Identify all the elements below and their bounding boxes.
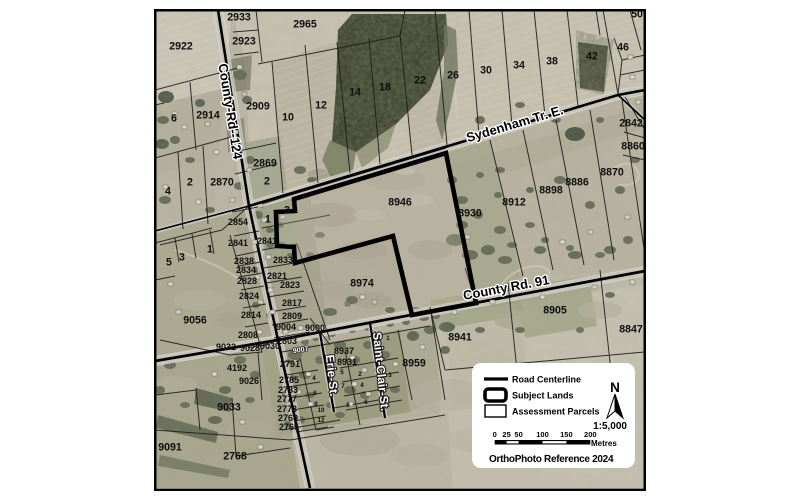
svg-text:4: 4 <box>165 186 171 198</box>
svg-text:8931: 8931 <box>337 357 357 367</box>
svg-text:2922: 2922 <box>169 41 193 53</box>
svg-text:14: 14 <box>349 87 361 99</box>
svg-text:8886: 8886 <box>565 177 589 189</box>
svg-text:Subject Lands: Subject Lands <box>512 391 574 401</box>
svg-text:8870: 8870 <box>600 167 624 179</box>
svg-text:9028: 9028 <box>240 343 260 353</box>
svg-text:6: 6 <box>364 399 368 406</box>
svg-text:150: 150 <box>560 430 573 439</box>
svg-text:8941: 8941 <box>448 332 472 344</box>
svg-text:200: 200 <box>584 430 597 439</box>
svg-text:9004: 9004 <box>276 322 296 332</box>
svg-text:10: 10 <box>282 112 294 124</box>
svg-text:Assessment Parcels: Assessment Parcels <box>512 407 600 417</box>
svg-text:2869: 2869 <box>253 158 277 170</box>
svg-text:6: 6 <box>171 113 177 125</box>
svg-text:25: 25 <box>502 430 510 439</box>
svg-text:8912: 8912 <box>502 197 526 209</box>
svg-text:2791: 2791 <box>280 359 300 369</box>
svg-text:2854: 2854 <box>228 217 248 227</box>
svg-text:9056: 9056 <box>183 315 207 327</box>
svg-text:9000: 9000 <box>305 323 325 333</box>
svg-text:1: 1 <box>386 335 390 342</box>
svg-text:2785: 2785 <box>279 375 299 385</box>
svg-text:8905: 8905 <box>543 305 567 317</box>
svg-text:Road Centerline: Road Centerline <box>512 375 581 385</box>
svg-text:2808: 2808 <box>238 330 258 340</box>
svg-text:Metres: Metres <box>591 439 617 448</box>
svg-text:9032: 9032 <box>216 342 236 352</box>
svg-text:30: 30 <box>480 65 492 77</box>
svg-text:9026: 9026 <box>239 376 259 386</box>
svg-text:8898: 8898 <box>539 185 563 197</box>
svg-text:3: 3 <box>284 205 290 217</box>
svg-text:9030: 9030 <box>260 341 280 351</box>
svg-text:2842: 2842 <box>619 118 643 130</box>
svg-text:5: 5 <box>340 369 344 376</box>
svg-text:2841: 2841 <box>257 236 277 246</box>
svg-text:2777: 2777 <box>277 394 297 404</box>
svg-text:1:5,000: 1:5,000 <box>593 421 627 432</box>
svg-text:12: 12 <box>318 417 325 424</box>
svg-text:18: 18 <box>379 82 391 94</box>
svg-text:1: 1 <box>265 214 271 226</box>
svg-text:4192: 4192 <box>227 363 247 373</box>
svg-text:3: 3 <box>179 252 185 264</box>
svg-text:100: 100 <box>536 430 549 439</box>
svg-text:2809: 2809 <box>282 311 302 321</box>
svg-text:N: N <box>610 380 620 395</box>
svg-text:2833: 2833 <box>273 255 293 265</box>
svg-text:8847: 8847 <box>619 324 643 336</box>
svg-text:OrthoPhoto Reference 2024: OrthoPhoto Reference 2024 <box>489 454 614 465</box>
svg-text:46: 46 <box>617 42 629 54</box>
svg-text:2768: 2768 <box>223 451 247 463</box>
svg-text:2870: 2870 <box>210 177 234 189</box>
svg-text:8860: 8860 <box>621 141 645 153</box>
svg-text:2814: 2814 <box>241 310 261 320</box>
svg-text:50: 50 <box>514 430 522 439</box>
svg-text:10: 10 <box>318 407 325 414</box>
svg-text:2841: 2841 <box>228 238 248 248</box>
svg-text:2914: 2914 <box>196 110 220 122</box>
svg-text:2: 2 <box>187 177 193 189</box>
svg-text:12: 12 <box>315 100 327 112</box>
svg-text:26: 26 <box>447 70 459 82</box>
svg-text:9091: 9091 <box>158 442 182 454</box>
svg-text:9: 9 <box>346 402 350 409</box>
svg-text:42: 42 <box>586 51 598 63</box>
svg-text:4: 4 <box>360 382 364 389</box>
svg-text:2923: 2923 <box>232 36 256 48</box>
svg-text:1: 1 <box>207 244 213 256</box>
svg-text:9033: 9033 <box>217 402 241 414</box>
svg-text:2965: 2965 <box>293 19 317 31</box>
svg-text:7: 7 <box>341 383 345 390</box>
svg-text:2909: 2909 <box>246 101 270 113</box>
svg-text:0: 0 <box>493 430 497 439</box>
svg-text:34: 34 <box>513 60 525 72</box>
svg-text:22: 22 <box>414 75 426 87</box>
svg-text:6: 6 <box>313 390 317 397</box>
svg-text:2933: 2933 <box>227 12 251 24</box>
svg-text:2823: 2823 <box>280 280 300 290</box>
svg-text:8959: 8959 <box>402 358 426 370</box>
svg-text:8974: 8974 <box>350 278 374 290</box>
svg-text:2: 2 <box>358 371 362 378</box>
svg-text:5: 5 <box>166 257 172 269</box>
svg-text:2824: 2824 <box>239 291 259 301</box>
svg-text:2: 2 <box>264 176 270 188</box>
svg-text:8930: 8930 <box>458 208 482 220</box>
svg-text:2817: 2817 <box>282 298 302 308</box>
svg-text:2828: 2828 <box>237 276 257 286</box>
svg-text:2834: 2834 <box>236 265 256 275</box>
svg-text:8946: 8946 <box>388 197 412 209</box>
svg-text:4: 4 <box>312 375 316 382</box>
svg-text:2765: 2765 <box>279 422 299 432</box>
svg-text:38: 38 <box>546 56 558 68</box>
